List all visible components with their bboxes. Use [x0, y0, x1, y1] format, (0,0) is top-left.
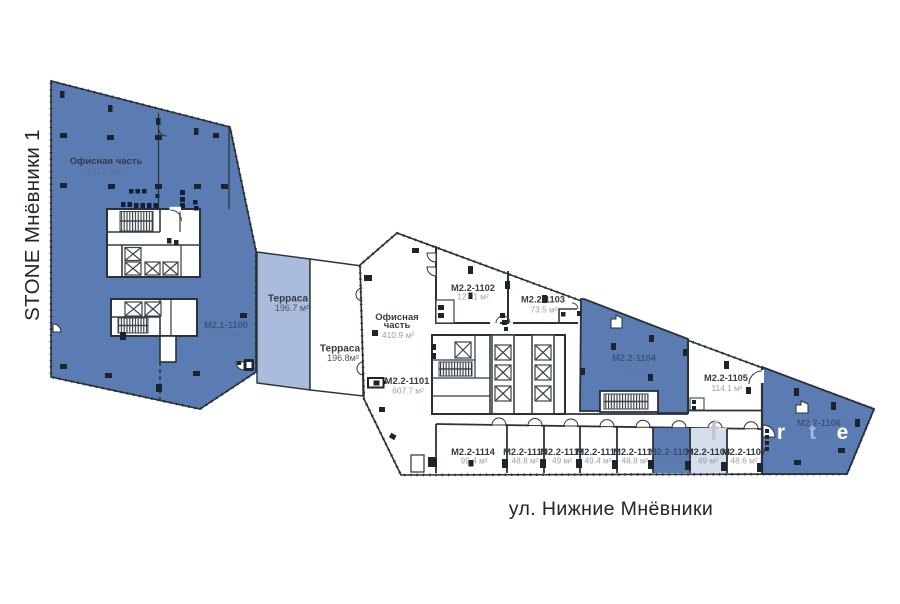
svg-text:49 м²: 49 м² — [698, 456, 718, 466]
svg-text:48.6 м²: 48.6 м² — [731, 456, 758, 466]
svg-text:607.7 м²: 607.7 м² — [392, 386, 424, 396]
svg-text:196.7 м²: 196.7 м² — [275, 303, 309, 313]
svg-text:STONE Мнёвники 1: STONE Мнёвники 1 — [21, 129, 44, 321]
svg-text:ул. Нижние Мнёвники: ул. Нижние Мнёвники — [509, 498, 713, 520]
svg-text:r: r — [777, 421, 785, 444]
svg-text:e: e — [837, 421, 849, 444]
svg-text:t: t — [809, 421, 816, 444]
svg-text:Офисная часть: Офисная часть — [70, 156, 143, 167]
svg-text:99.4 м²: 99.4 м² — [461, 456, 488, 466]
svg-text:114.1 м²: 114.1 м² — [712, 383, 743, 393]
svg-text:410.9 м²: 410.9 м² — [382, 330, 414, 340]
svg-text:М2.2-1105: М2.2-1105 — [704, 373, 748, 383]
svg-text:49.4 м²: 49.4 м² — [585, 456, 612, 466]
svg-text:48.8 м²: 48.8 м² — [622, 456, 649, 466]
svg-text:М2.2-1104: М2.2-1104 — [612, 353, 657, 363]
svg-text:233.5 м²: 233.5 м² — [618, 363, 650, 373]
svg-text:1312,3м²: 1312,3м² — [87, 167, 124, 177]
svg-text:127.1 м²: 127.1 м² — [457, 292, 489, 302]
svg-text:73.5 м²: 73.5 м² — [531, 305, 558, 315]
svg-text:f: f — [710, 416, 719, 446]
svg-text:49 м²: 49 м² — [552, 456, 572, 466]
svg-text:М2.2-1106: М2.2-1106 — [797, 418, 841, 428]
svg-text:48.8 м²: 48.8 м² — [512, 456, 539, 466]
svg-text:49.4 м²: 49.4 м² — [658, 456, 685, 466]
svg-text:196.8м²: 196.8м² — [327, 353, 359, 363]
svg-text:1509 м²: 1509 м² — [211, 329, 240, 339]
